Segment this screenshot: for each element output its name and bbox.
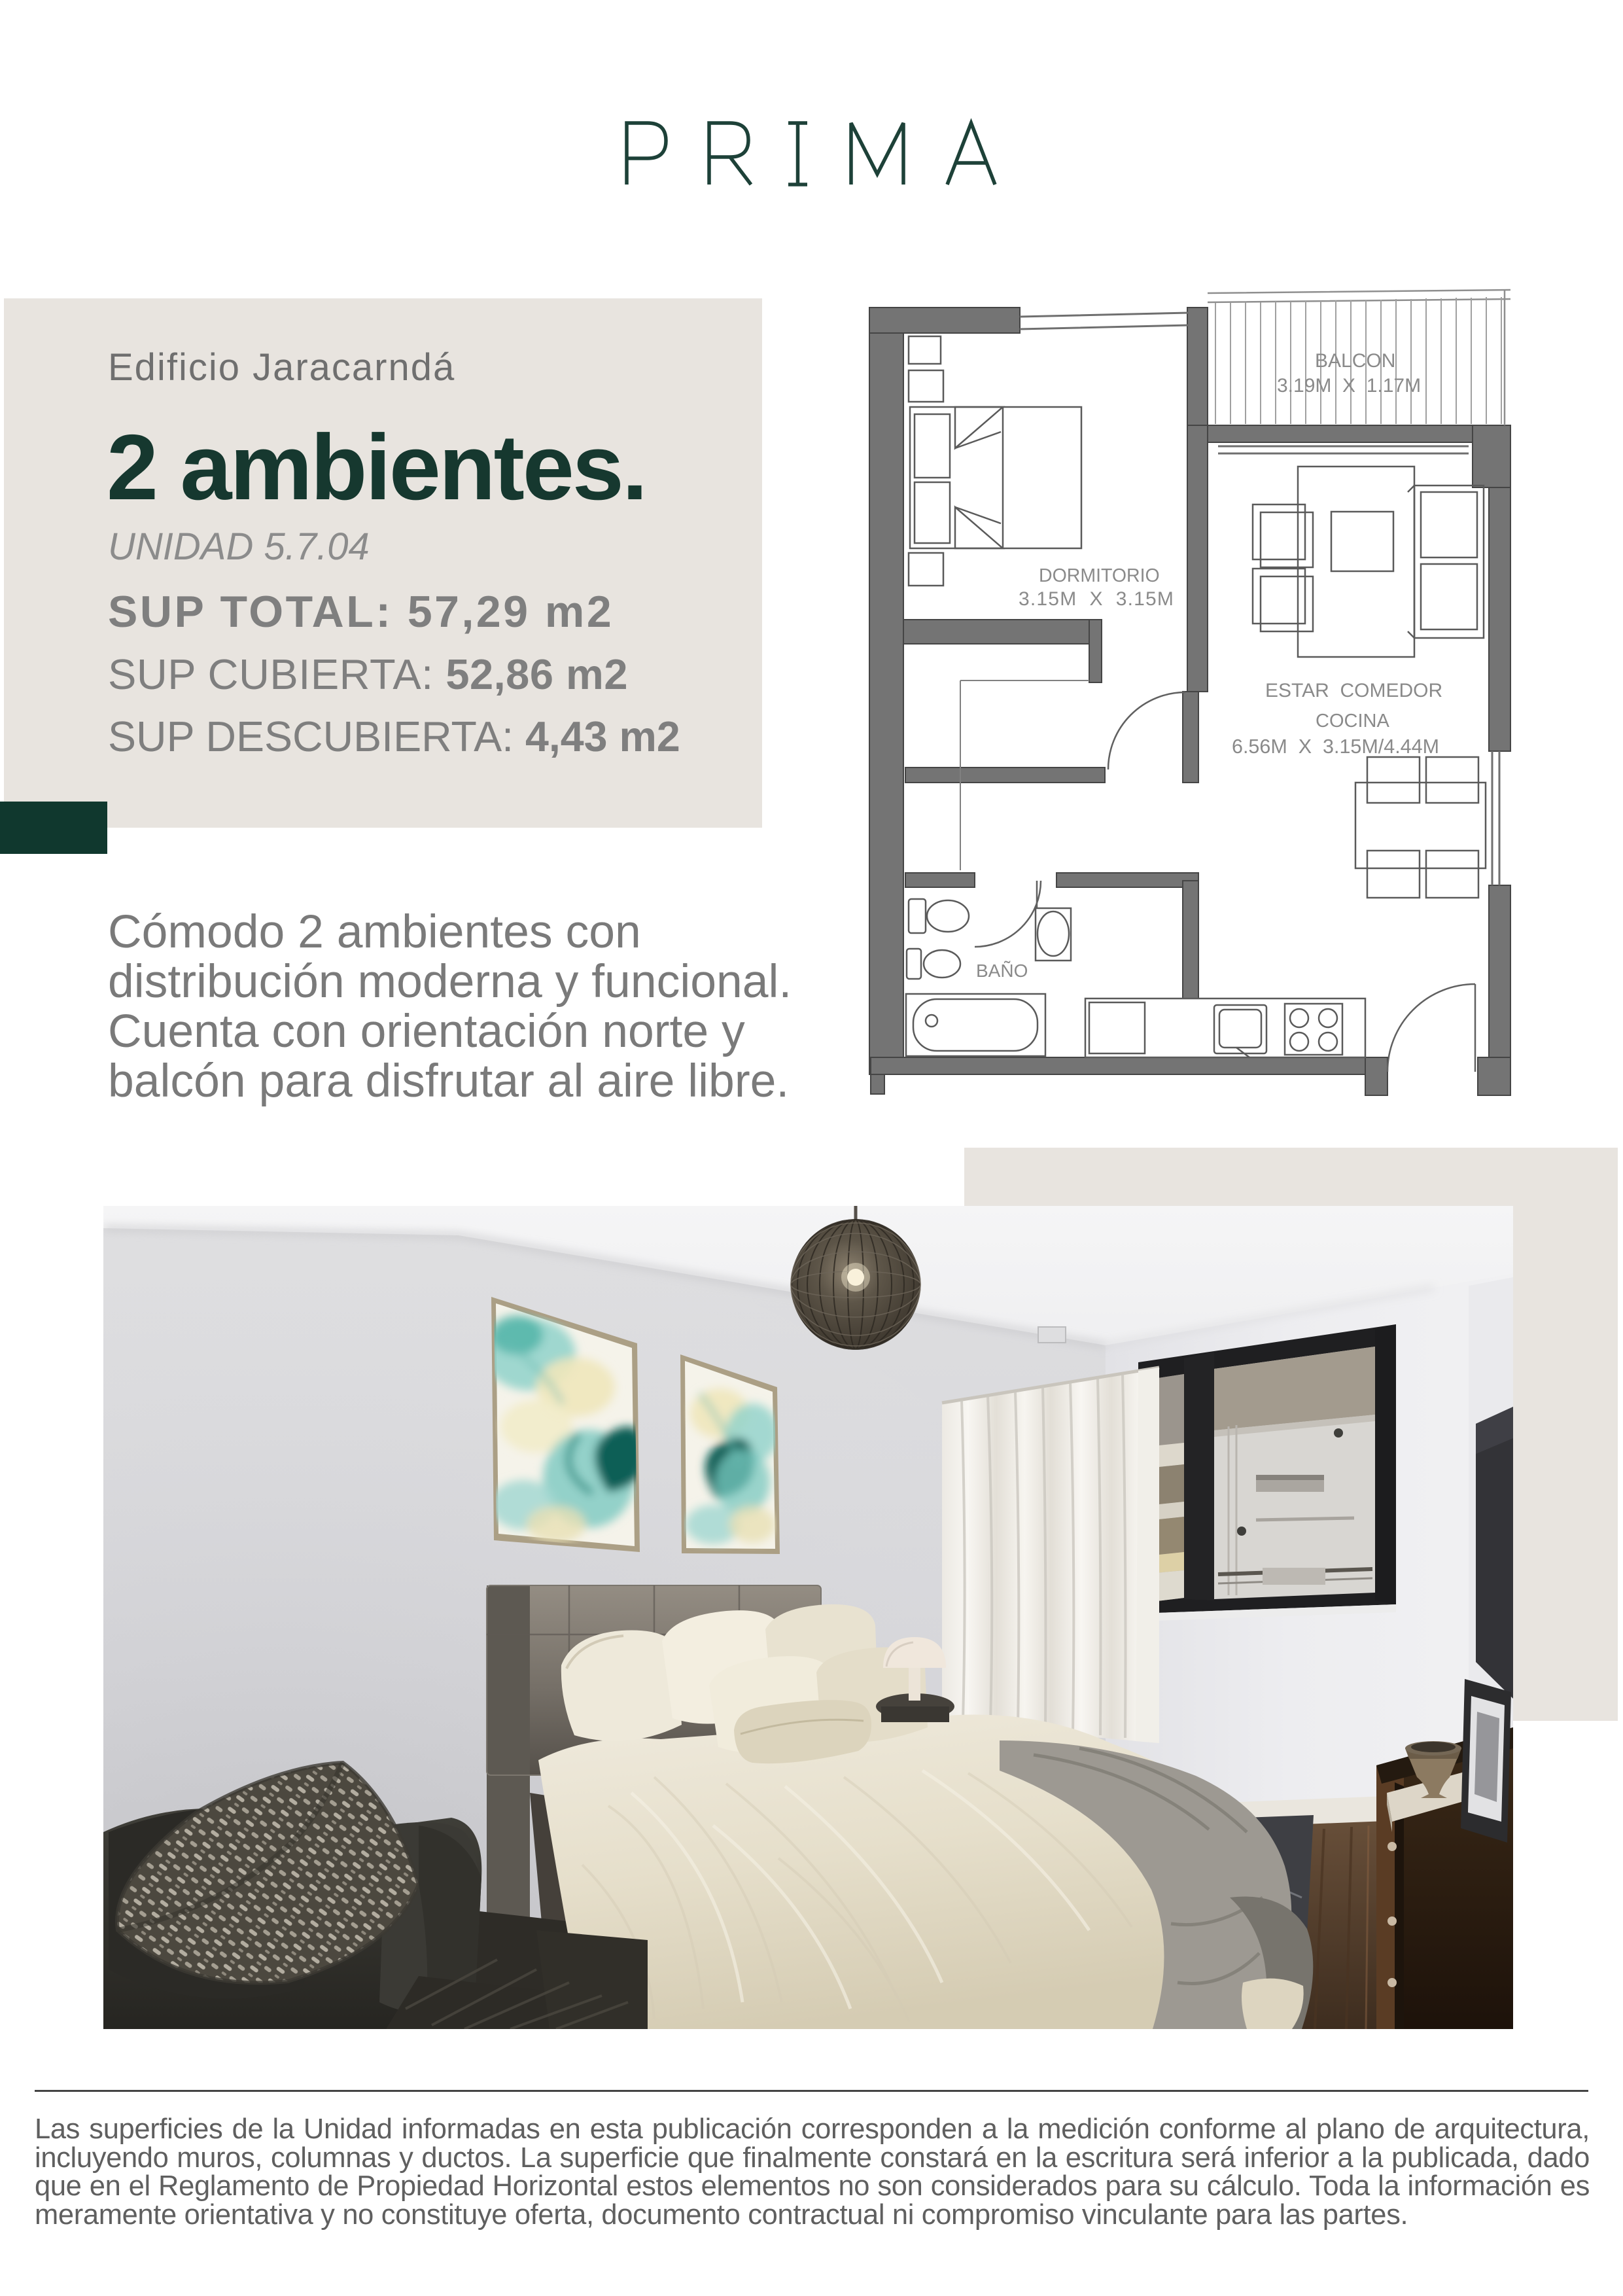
svg-text:BAÑO: BAÑO bbox=[976, 961, 1028, 981]
svg-text:COCINA: COCINA bbox=[1316, 711, 1389, 732]
svg-text:ESTAR COMEDOR: ESTAR COMEDOR bbox=[1265, 680, 1442, 701]
svg-text:DORMITORIO: DORMITORIO bbox=[1039, 565, 1160, 586]
svg-text:6.56M X 3.15M/4.44M: 6.56M X 3.15M/4.44M bbox=[1232, 735, 1439, 758]
svg-text:3.15M X 3.15M: 3.15M X 3.15M bbox=[1019, 588, 1174, 610]
svg-text:3.19M X 1.17M: 3.19M X 1.17M bbox=[1277, 375, 1421, 397]
svg-text:BALCON: BALCON bbox=[1315, 350, 1395, 372]
